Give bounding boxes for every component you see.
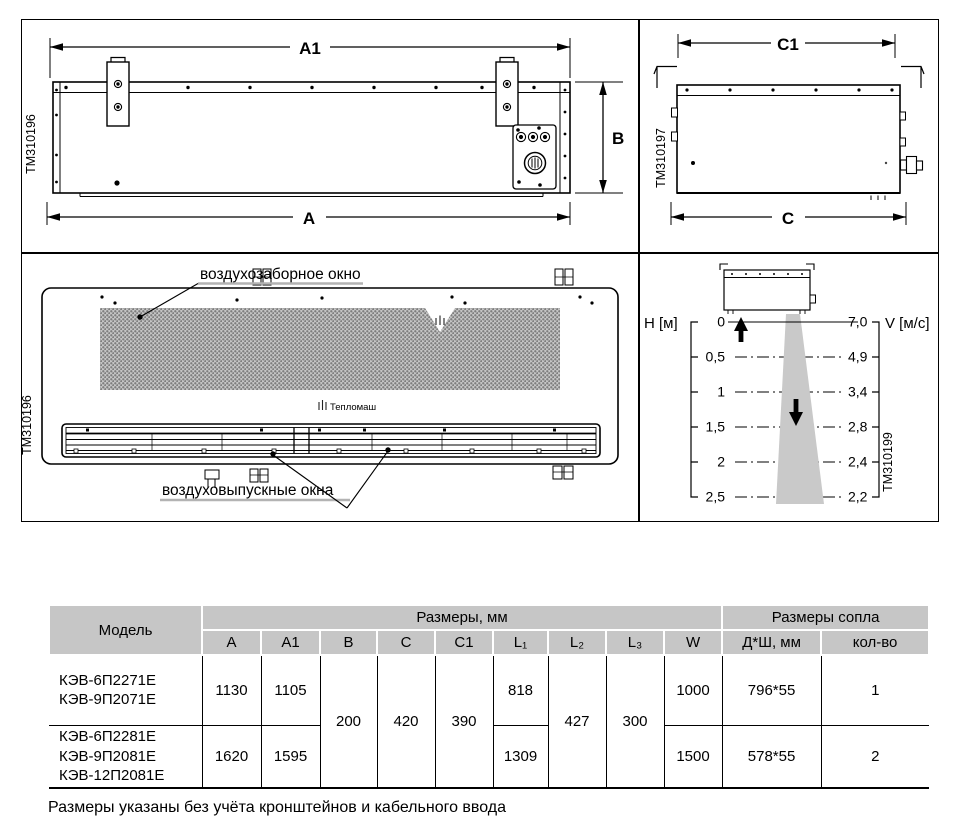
svg-text:2,2: 2,2: [848, 489, 868, 505]
dim-a1-label: A1: [299, 39, 321, 58]
cell-l3-shared: 300: [606, 655, 664, 788]
cell-a1: 1595: [261, 725, 320, 788]
front-view-callout-drawing: Тепломаш воздухозаборное окно: [22, 254, 638, 521]
table-row: КЭВ-6П2271Е КЭВ-9П2071Е 1130 1105 200 42…: [49, 655, 929, 725]
cell-l1: 1309: [493, 725, 548, 788]
cell-models: КЭВ-6П2281Е КЭВ-9П2081Е КЭВ-12П2081Е: [49, 725, 202, 788]
header-model: Модель: [49, 605, 202, 655]
svg-text:2,8: 2,8: [848, 419, 868, 435]
cell-nozzle: 796*55: [722, 655, 821, 725]
cell-a: 1130: [202, 655, 261, 725]
svg-text:2,4: 2,4: [848, 454, 868, 470]
dim-b: B: [575, 82, 624, 193]
airflow-diagram: H [м] V [м/с] 0 0,5 1 1,5 2 2,5 7,0 4,9 …: [640, 254, 938, 521]
dim-c1: C1: [678, 32, 895, 58]
cell-l2-shared: 427: [548, 655, 606, 788]
dimensions-table: Модель Размеры, мм Размеры сопла A A1 B …: [48, 604, 930, 789]
col-l3: L₃: [606, 630, 664, 655]
v-axis-scale: [872, 322, 879, 497]
intake-callout-label: воздухозаборное окно: [200, 266, 361, 283]
brand-name: Тепломаш: [330, 402, 376, 413]
up-arrow-icon: [734, 317, 748, 342]
unit-side-outline: [672, 85, 906, 200]
h-tick-labels: 0 0,5 1 1,5 2 2,5: [706, 314, 726, 505]
drawing-code: TM310196: [22, 395, 34, 455]
cell-l1: 818: [493, 655, 548, 725]
cell-w: 1000: [664, 655, 722, 725]
dim-a-label: A: [303, 209, 315, 228]
dim-c-label: C: [782, 209, 794, 228]
col-count: кол-во: [821, 630, 929, 655]
outlet-grille: [62, 424, 600, 457]
col-a1: A1: [261, 630, 320, 655]
drawing-code: TM310196: [24, 114, 38, 174]
cell-models: КЭВ-6П2271Е КЭВ-9П2071Е: [49, 655, 202, 725]
svg-text:1: 1: [717, 384, 725, 400]
front-view-drawing: A1 A B TM310196: [22, 20, 638, 252]
dim-c: C: [671, 202, 906, 228]
side-view-drawing: C1: [640, 20, 938, 252]
dim-c1-label: C1: [777, 35, 799, 54]
col-nozzle: Д*Ш, мм: [722, 630, 821, 655]
col-c: C: [377, 630, 435, 655]
svg-text:2: 2: [717, 454, 725, 470]
air-intake-grid: [100, 308, 560, 390]
col-l2: L₂: [548, 630, 606, 655]
v-tick-labels: 7,0 4,9 3,4 2,8 2,4 2,2: [848, 314, 868, 505]
svg-text:1,5: 1,5: [706, 419, 726, 435]
drawing-code: TM310197: [654, 128, 668, 188]
cell-nozzle: 578*55: [722, 725, 821, 788]
svg-text:2,5: 2,5: [706, 489, 726, 505]
col-b: B: [320, 630, 377, 655]
cell-count: 2: [821, 725, 929, 788]
footnote: Размеры указаны без учёта кронштейнов и …: [48, 799, 506, 817]
v-axis-label: V [м/с]: [885, 315, 930, 332]
cell-count: 1: [821, 655, 929, 725]
col-a: A: [202, 630, 261, 655]
svg-text:4,9: 4,9: [848, 349, 868, 365]
col-w: W: [664, 630, 722, 655]
airflow-cone: [776, 314, 824, 504]
electrical-box: [513, 125, 556, 189]
h-axis-scale: [691, 322, 698, 497]
cell-a1: 1105: [261, 655, 320, 725]
cell-b-shared: 200: [320, 655, 377, 788]
mini-unit-drawing: [720, 264, 816, 314]
h-axis-label: H [м]: [644, 315, 678, 332]
svg-text:3,4: 3,4: [848, 384, 868, 400]
outlet-callout-label: воздуховыпускные окна: [162, 482, 334, 499]
cell-a: 1620: [202, 725, 261, 788]
dim-a: A: [47, 202, 570, 228]
drawing-panels: A1 A B TM310196 C1: [21, 19, 939, 522]
svg-text:0,5: 0,5: [706, 349, 726, 365]
dim-b-label: B: [612, 129, 624, 148]
col-l1: L₁: [493, 630, 548, 655]
cell-w: 1500: [664, 725, 722, 788]
col-c1: C1: [435, 630, 493, 655]
cell-c1-shared: 390: [435, 655, 493, 788]
unit-front-outline: [53, 82, 570, 197]
header-dims-group: Размеры, мм: [202, 605, 722, 630]
cable-gland: [901, 157, 923, 174]
svg-text:0: 0: [717, 314, 725, 330]
cell-c-shared: 420: [377, 655, 435, 788]
drawing-code: TM310199: [881, 432, 895, 492]
header-nozzle-group: Размеры сопла: [722, 605, 929, 630]
